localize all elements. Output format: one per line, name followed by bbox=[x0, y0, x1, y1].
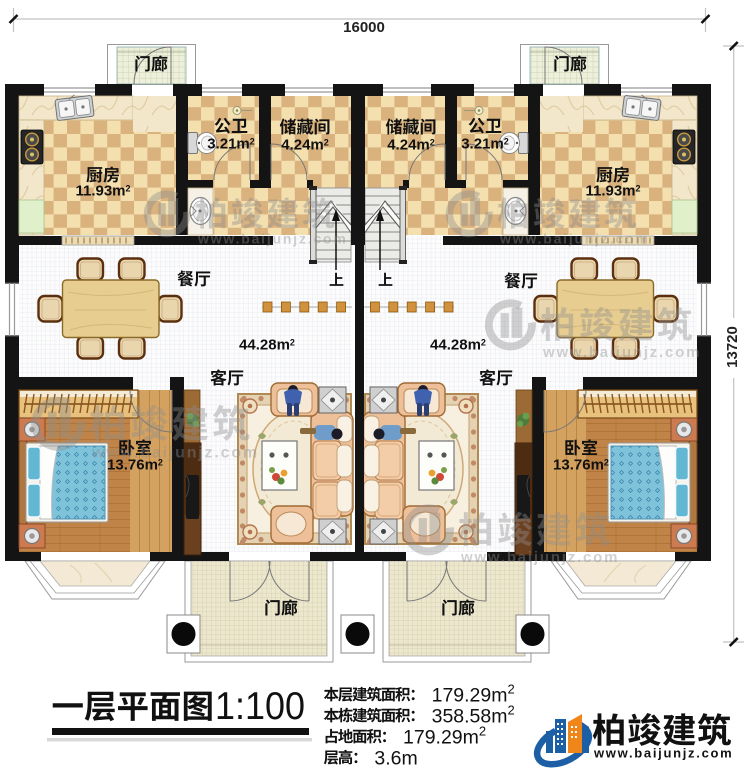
svg-text:11.93m2: 11.93m2 bbox=[75, 182, 130, 199]
svg-text:www.baijunjz.com: www.baijunjz.com bbox=[593, 746, 733, 761]
svg-text:13720: 13720 bbox=[724, 326, 741, 368]
svg-text:www.baijunjz.com: www.baijunjz.com bbox=[499, 230, 650, 246]
svg-text:www.baijunjz.com: www.baijunjz.com bbox=[197, 230, 348, 246]
svg-text:179.29m2: 179.29m2 bbox=[432, 681, 515, 706]
svg-text:13.76m2: 13.76m2 bbox=[553, 456, 609, 473]
svg-text:44.28m2: 44.28m2 bbox=[430, 336, 486, 353]
svg-text:4.24m2: 4.24m2 bbox=[387, 136, 435, 153]
svg-text:44.28m2: 44.28m2 bbox=[239, 336, 295, 353]
svg-text:3.21m2: 3.21m2 bbox=[461, 135, 509, 152]
svg-text:1:100: 1:100 bbox=[215, 685, 305, 728]
svg-text:www.baijunjz.com: www.baijunjz.com bbox=[460, 549, 619, 566]
svg-text:179.29m2: 179.29m2 bbox=[403, 723, 486, 748]
svg-text:358.58m2: 358.58m2 bbox=[432, 702, 515, 727]
svg-text:www.baijunjz.com: www.baijunjz.com bbox=[542, 344, 701, 361]
svg-text:3.21m2: 3.21m2 bbox=[207, 135, 255, 152]
svg-text:16000: 16000 bbox=[343, 19, 385, 36]
svg-text:www.baijunjz.com: www.baijunjz.com bbox=[91, 445, 259, 462]
svg-text:4.24m2: 4.24m2 bbox=[281, 136, 329, 153]
svg-text:11.93m2: 11.93m2 bbox=[585, 182, 640, 199]
svg-text:3.6m: 3.6m bbox=[374, 747, 417, 769]
